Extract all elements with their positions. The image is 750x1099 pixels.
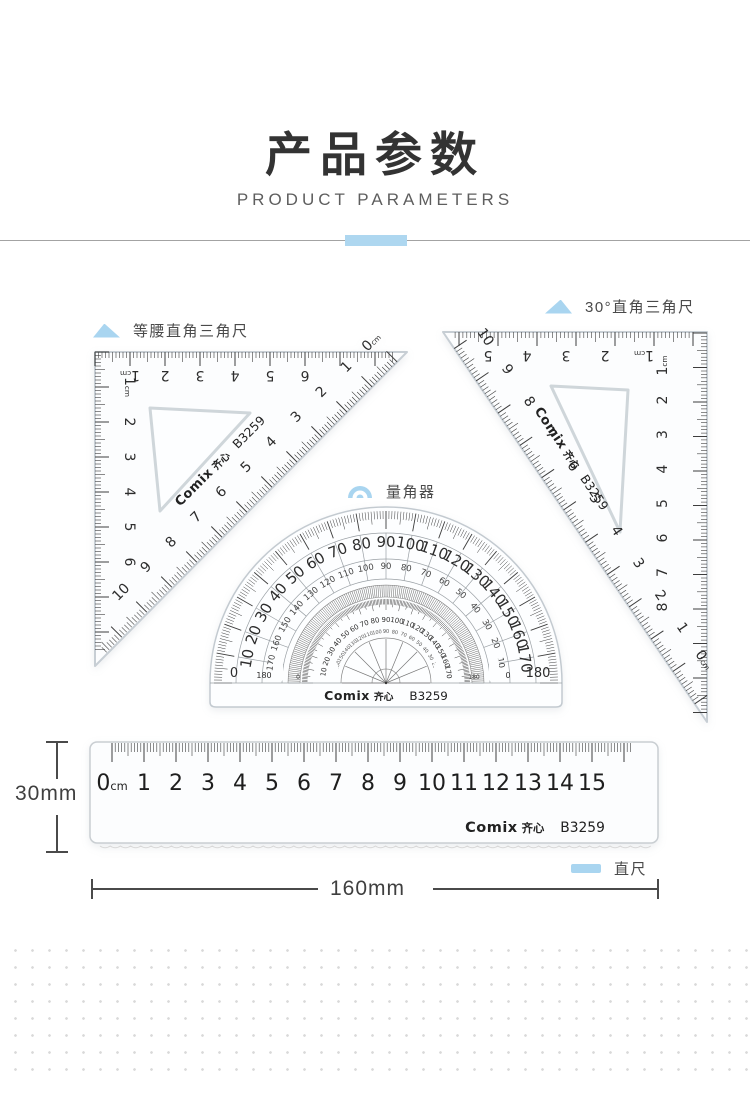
straight-ruler: 0cm123456789101112131415Comix齐心B3259	[88, 740, 662, 852]
svg-text:6: 6	[297, 771, 311, 796]
svg-text:0: 0	[296, 674, 300, 681]
svg-text:5: 5	[266, 367, 275, 383]
dim-height-line-top	[56, 742, 58, 779]
svg-text:8: 8	[361, 771, 375, 796]
svg-text:Comix齐心B3259: Comix齐心B3259	[465, 820, 605, 836]
dim-height-text: 30mm	[15, 782, 77, 806]
dim-width-cap-right	[657, 879, 659, 899]
svg-text:90: 90	[383, 629, 389, 635]
svg-text:0: 0	[505, 671, 510, 680]
svg-text:6: 6	[300, 367, 309, 383]
svg-text:90: 90	[381, 562, 392, 572]
svg-text:6: 6	[655, 533, 671, 542]
svg-text:9: 9	[393, 771, 407, 796]
divider-accent	[345, 235, 407, 246]
straight-ruler-icon	[571, 864, 601, 873]
svg-text:2: 2	[601, 347, 610, 363]
svg-text:13: 13	[514, 771, 542, 796]
svg-text:1: 1	[137, 771, 151, 796]
svg-text:10: 10	[237, 648, 258, 670]
svg-text:2: 2	[655, 396, 671, 405]
svg-text:80: 80	[391, 629, 398, 636]
svg-text:5: 5	[655, 499, 671, 508]
svg-text:5: 5	[265, 771, 279, 796]
svg-text:2: 2	[121, 418, 137, 427]
svg-text:4: 4	[233, 771, 247, 796]
svg-text:14: 14	[546, 771, 574, 796]
svg-text:15: 15	[578, 771, 606, 796]
dim-height-cap-bottom	[46, 851, 68, 853]
svg-text:2: 2	[161, 367, 170, 383]
svg-text:7: 7	[655, 568, 671, 577]
protractor: 0180101702016030150401405013060120701108…	[205, 502, 567, 708]
svg-text:12: 12	[482, 771, 510, 796]
svg-text:3: 3	[655, 430, 671, 439]
svg-text:180: 180	[526, 666, 551, 681]
svg-text:3: 3	[196, 367, 205, 383]
svg-text:180: 180	[256, 671, 271, 680]
svg-text:80: 80	[400, 563, 412, 575]
svg-text:3: 3	[201, 771, 215, 796]
label-text-ruler: 直尺	[614, 858, 647, 879]
dim-width-text: 160mm	[330, 877, 405, 901]
svg-text:0: 0	[230, 666, 238, 681]
label-straight-ruler: 直尺	[571, 858, 647, 879]
svg-text:4: 4	[655, 464, 671, 473]
svg-text:5: 5	[121, 523, 137, 532]
svg-text:5: 5	[484, 347, 493, 363]
svg-text:4: 4	[121, 488, 137, 497]
svg-text:3: 3	[562, 347, 571, 363]
specs-panel: 型号： B3259 规格： 4件套 颜色： 透明 名称： 学生波浪套尺 材质： …	[0, 935, 750, 1072]
svg-text:80: 80	[351, 534, 373, 555]
svg-text:3: 3	[121, 453, 137, 462]
svg-text:2: 2	[169, 771, 183, 796]
svg-text:6: 6	[121, 558, 137, 567]
svg-text:4: 4	[522, 347, 531, 363]
product-parameters-page: 产品参数 PRODUCT PARAMETERS 等腰直角三角尺 30°直角三角尺…	[0, 0, 750, 1099]
divider-line	[0, 240, 750, 241]
page-subtitle: PRODUCT PARAMETERS	[0, 190, 750, 210]
svg-text:90: 90	[376, 533, 395, 551]
svg-text:4: 4	[230, 367, 239, 383]
svg-text:11: 11	[450, 771, 478, 796]
svg-text:10: 10	[319, 667, 328, 677]
svg-text:7: 7	[329, 771, 343, 796]
page-title: 产品参数	[0, 116, 750, 185]
dim-width-line-right	[433, 888, 657, 890]
svg-text:180: 180	[468, 674, 480, 681]
dim-height-line-bottom	[56, 815, 58, 852]
svg-text:10: 10	[418, 771, 446, 796]
svg-text:8: 8	[655, 603, 671, 612]
svg-text:80: 80	[370, 616, 380, 625]
dim-width-line-left	[93, 888, 318, 890]
